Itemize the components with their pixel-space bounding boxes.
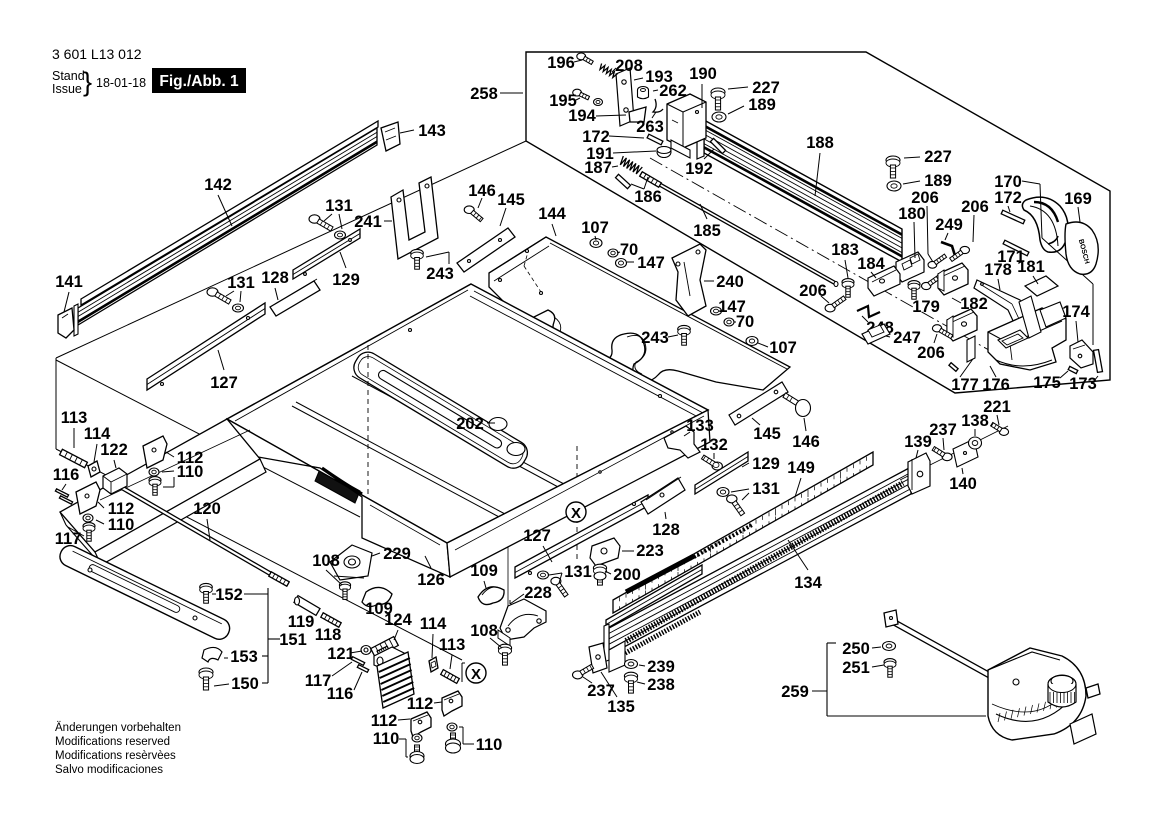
svg-text:196: 196 (547, 54, 575, 72)
svg-text:109: 109 (470, 562, 498, 580)
svg-text:Änderungen vorbehalten: Änderungen vorbehalten (55, 722, 181, 734)
svg-text:259: 259 (781, 683, 809, 701)
svg-text:}: } (83, 67, 92, 97)
svg-text:3 601 L13 012: 3 601 L13 012 (52, 46, 142, 62)
svg-text:174: 174 (1062, 303, 1090, 321)
svg-text:173: 173 (1069, 375, 1097, 393)
svg-text:241: 241 (354, 213, 382, 231)
svg-text:124: 124 (384, 611, 412, 629)
svg-text:135: 135 (607, 698, 635, 716)
svg-text:206: 206 (961, 198, 989, 216)
svg-text:186: 186 (634, 188, 662, 206)
svg-text:114: 114 (420, 615, 447, 633)
svg-text:147: 147 (637, 254, 665, 272)
svg-text:189: 189 (924, 172, 952, 190)
svg-text:191: 191 (586, 145, 614, 163)
svg-text:112: 112 (371, 712, 398, 730)
svg-text:140: 140 (949, 475, 977, 493)
svg-text:Modifications resèrvèes: Modifications resèrvèes (55, 750, 176, 762)
svg-text:172: 172 (994, 189, 1022, 207)
svg-text:179: 179 (912, 298, 940, 316)
svg-text:121: 121 (327, 645, 355, 663)
svg-text:206: 206 (911, 189, 939, 207)
svg-text:133: 133 (686, 417, 714, 435)
svg-text:107: 107 (769, 339, 797, 357)
svg-text:192: 192 (685, 160, 713, 178)
svg-text:145: 145 (753, 425, 781, 443)
svg-text:70: 70 (736, 313, 754, 331)
svg-text:262: 262 (659, 82, 687, 100)
svg-text:183: 183 (831, 241, 859, 259)
svg-text:188: 188 (806, 134, 834, 152)
svg-text:243: 243 (641, 329, 669, 347)
svg-text:228: 228 (524, 584, 552, 602)
svg-text:202: 202 (456, 415, 484, 433)
svg-text:118: 118 (315, 626, 342, 644)
svg-text:177: 177 (951, 376, 979, 394)
svg-text:129: 129 (752, 455, 780, 473)
svg-text:239: 239 (647, 658, 675, 676)
svg-text:182: 182 (960, 295, 988, 313)
svg-text:142: 142 (204, 176, 232, 194)
svg-text:Issue: Issue (52, 82, 82, 96)
svg-text:172: 172 (582, 128, 610, 146)
svg-text:110: 110 (108, 516, 135, 534)
svg-text:206: 206 (917, 344, 945, 362)
svg-text:131: 131 (564, 563, 592, 581)
svg-text:227: 227 (924, 148, 952, 166)
svg-text:258: 258 (470, 85, 498, 103)
svg-text:127: 127 (523, 527, 551, 545)
svg-text:146: 146 (468, 182, 496, 200)
svg-text:128: 128 (261, 269, 289, 287)
svg-text:108: 108 (312, 552, 340, 570)
svg-text:184: 184 (857, 255, 885, 273)
svg-text:108: 108 (470, 622, 498, 640)
svg-text:X: X (571, 505, 581, 522)
svg-text:238: 238 (647, 676, 675, 694)
svg-text:149: 149 (787, 459, 815, 477)
svg-text:112: 112 (407, 695, 434, 713)
svg-text:178: 178 (984, 261, 1012, 279)
svg-text:189: 189 (748, 96, 776, 114)
svg-text:X: X (471, 666, 481, 683)
svg-text:181: 181 (1017, 258, 1045, 276)
svg-text:250: 250 (842, 640, 870, 658)
svg-text:151: 151 (279, 631, 307, 649)
svg-text:175: 175 (1033, 374, 1061, 392)
svg-text:249: 249 (935, 216, 963, 234)
svg-text:120: 120 (193, 500, 221, 518)
svg-text:208: 208 (615, 57, 643, 75)
svg-text:240: 240 (716, 273, 744, 291)
svg-text:Salvo modificaciones: Salvo modificaciones (55, 764, 163, 776)
svg-text:110: 110 (373, 730, 400, 748)
svg-text:223: 223 (636, 542, 664, 560)
svg-text:152: 152 (215, 586, 243, 604)
svg-text:110: 110 (177, 463, 204, 481)
svg-text:Fig./Abb. 1: Fig./Abb. 1 (159, 73, 239, 90)
svg-text:131: 131 (752, 480, 780, 498)
svg-text:229: 229 (383, 545, 411, 563)
svg-text:127: 127 (210, 374, 238, 392)
svg-text:169: 169 (1064, 190, 1092, 208)
svg-text:185: 185 (693, 222, 721, 240)
svg-text:194: 194 (568, 107, 596, 125)
svg-text:131: 131 (227, 274, 255, 292)
svg-text:237: 237 (587, 682, 615, 700)
svg-text:122: 122 (100, 441, 128, 459)
svg-text:145: 145 (497, 191, 525, 209)
svg-text:107: 107 (581, 219, 609, 237)
svg-text:126: 126 (417, 571, 445, 589)
svg-text:134: 134 (794, 574, 822, 592)
svg-text:Modifications reserved: Modifications reserved (55, 736, 170, 748)
svg-text:18-01-18: 18-01-18 (96, 76, 146, 90)
svg-text:150: 150 (231, 675, 259, 693)
svg-text:139: 139 (904, 433, 932, 451)
svg-text:190: 190 (689, 65, 717, 83)
svg-text:141: 141 (55, 273, 83, 291)
svg-text:144: 144 (538, 205, 566, 223)
svg-text:132: 132 (700, 436, 728, 454)
svg-text:176: 176 (982, 376, 1010, 394)
svg-text:237: 237 (929, 421, 957, 439)
svg-text:110: 110 (476, 736, 503, 754)
svg-text:143: 143 (418, 122, 446, 140)
svg-text:153: 153 (230, 648, 258, 666)
svg-text:116: 116 (53, 466, 80, 484)
svg-text:243: 243 (426, 265, 454, 283)
svg-text:221: 221 (983, 398, 1011, 416)
svg-text:180: 180 (898, 205, 926, 223)
svg-text:131: 131 (325, 197, 353, 215)
svg-text:146: 146 (792, 433, 820, 451)
svg-text:70: 70 (620, 241, 638, 259)
svg-text:227: 227 (752, 79, 780, 97)
svg-text:116: 116 (327, 685, 354, 703)
svg-text:200: 200 (613, 566, 641, 584)
svg-text:119: 119 (288, 613, 315, 631)
svg-text:Stand: Stand (52, 69, 85, 83)
svg-text:263: 263 (636, 118, 664, 136)
svg-text:128: 128 (652, 521, 680, 539)
svg-text:251: 251 (842, 659, 870, 677)
svg-text:113: 113 (439, 636, 466, 654)
svg-text:129: 129 (332, 271, 360, 289)
